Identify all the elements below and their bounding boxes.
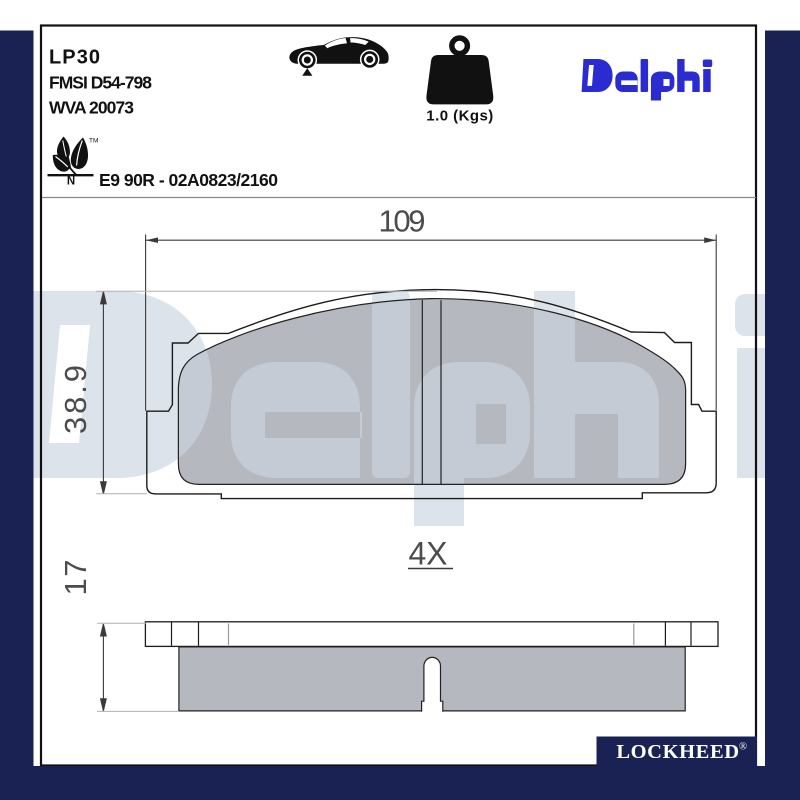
svg-text:38.9: 38.9 bbox=[58, 365, 93, 434]
svg-text:LP30: LP30 bbox=[49, 47, 100, 69]
svg-text:4X: 4X bbox=[409, 536, 448, 572]
svg-text:109: 109 bbox=[379, 204, 426, 239]
svg-text:LOCKHEED: LOCKHEED bbox=[616, 741, 739, 763]
svg-text:17: 17 bbox=[58, 560, 93, 596]
svg-text:N: N bbox=[67, 176, 75, 188]
svg-text:FMSI D54-798: FMSI D54-798 bbox=[49, 73, 152, 93]
svg-text:1.0 (Kgs): 1.0 (Kgs) bbox=[426, 108, 493, 125]
svg-text:TM: TM bbox=[89, 138, 98, 145]
svg-text:E9 90R - 02A0823/2160: E9 90R - 02A0823/2160 bbox=[99, 170, 278, 190]
svg-text:®: ® bbox=[739, 742, 747, 753]
svg-text:WVA 20073: WVA 20073 bbox=[49, 98, 134, 118]
